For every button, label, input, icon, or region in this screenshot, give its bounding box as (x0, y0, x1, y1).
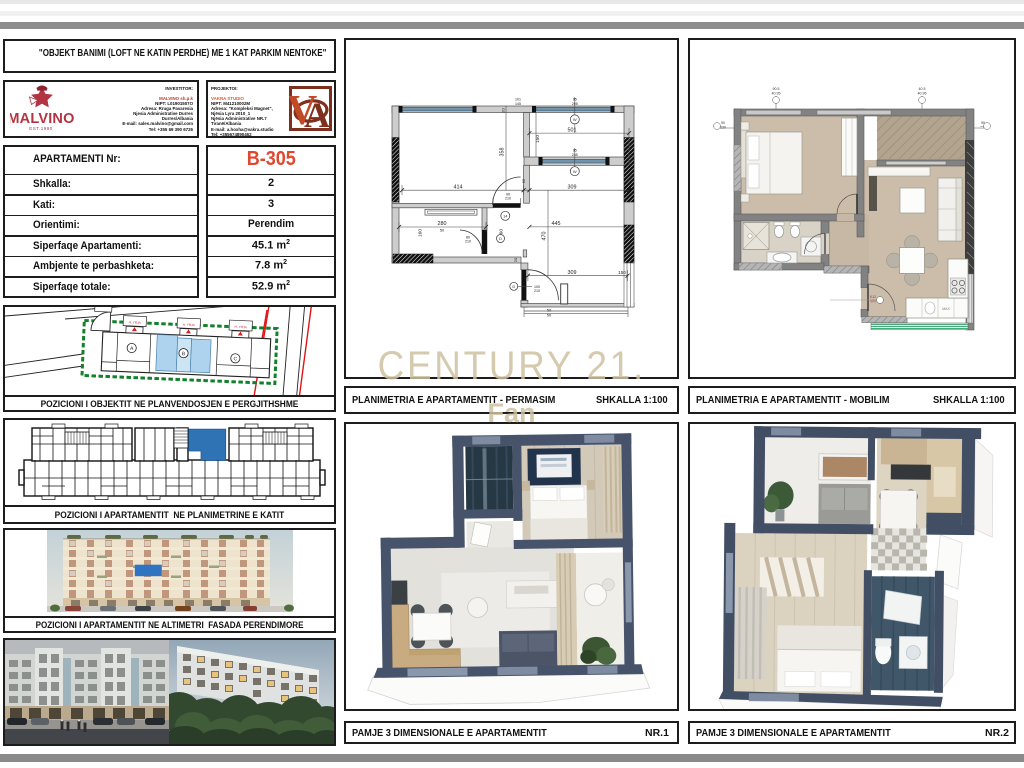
svg-text:470: 470 (542, 232, 548, 241)
svg-text:20: 20 (501, 108, 506, 113)
svg-text:40.5: 40.5 (919, 87, 926, 91)
svg-text:90.5: 90.5 (773, 87, 780, 91)
svg-text:210: 210 (534, 289, 540, 293)
svg-text:160: 160 (418, 229, 424, 237)
svg-text:501: 501 (568, 128, 577, 134)
svg-text:150: 150 (535, 135, 541, 143)
svg-text:150: 150 (618, 270, 626, 275)
svg-text:I(B): I(B) (870, 299, 875, 303)
svg-text:MAX: MAX (942, 307, 950, 311)
svg-text:280: 280 (438, 221, 447, 227)
svg-text:90: 90 (721, 121, 725, 125)
svg-text:C: C (233, 356, 237, 362)
svg-text:H. YRJA: H. YRJA (235, 325, 248, 330)
svg-text:20: 20 (513, 257, 518, 262)
svg-text:D: D (499, 236, 502, 241)
svg-text:145: 145 (515, 102, 521, 106)
svg-text:MALVINO: MALVINO (10, 111, 75, 127)
svg-text:D: D (512, 284, 515, 289)
svg-text:358: 358 (500, 148, 506, 157)
svg-text:210: 210 (465, 240, 471, 244)
svg-text:40.95: 40.95 (772, 92, 781, 96)
svg-text:40.95: 40.95 (918, 92, 927, 96)
svg-text:62: 62 (521, 178, 526, 183)
svg-text:A: A (304, 95, 330, 131)
svg-text:50: 50 (547, 313, 552, 318)
svg-text:295: 295 (572, 102, 578, 106)
svg-text:414: 414 (454, 185, 463, 191)
svg-text:309: 309 (568, 270, 577, 276)
svg-text:W: W (573, 117, 577, 122)
svg-text:EST.1990: EST.1990 (29, 126, 53, 131)
svg-text:14: 14 (503, 213, 508, 218)
svg-text:309: 309 (568, 185, 577, 191)
svg-text:W: W (573, 169, 577, 174)
svg-text:H. YRJA: H. YRJA (183, 323, 196, 328)
svg-text:210: 210 (505, 197, 511, 201)
svg-text:445: 445 (552, 221, 561, 227)
svg-text:245: 245 (572, 153, 578, 157)
svg-text:50: 50 (440, 228, 445, 233)
svg-text:H. YRJA: H. YRJA (129, 320, 142, 325)
svg-text:230: 230 (720, 126, 726, 130)
